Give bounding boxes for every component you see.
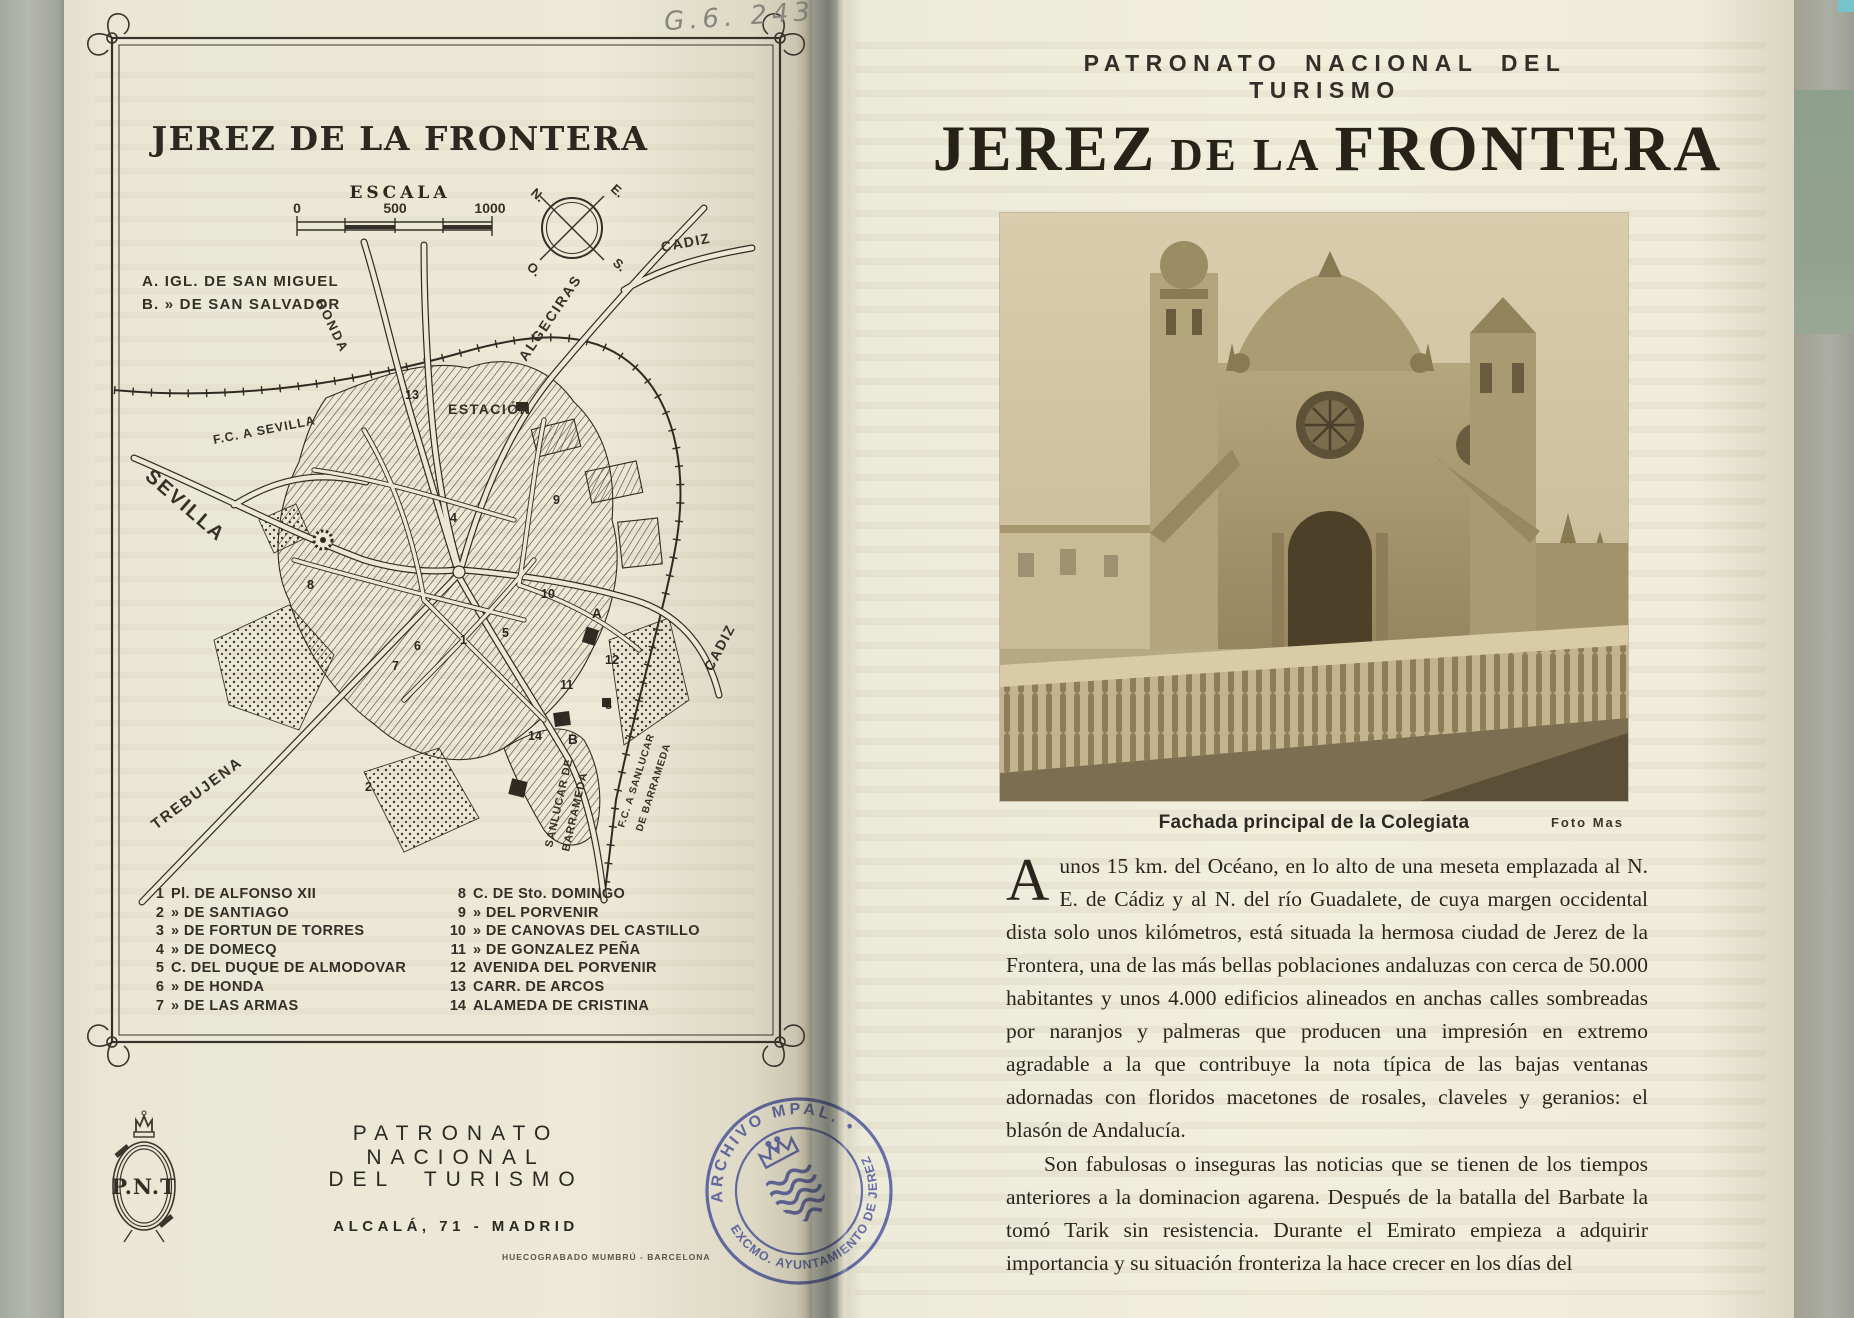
svg-text:9: 9: [553, 493, 560, 507]
green-page-corner: [1792, 90, 1854, 334]
map-key-a: A. IGL. DE SAN MIGUEL: [142, 273, 339, 290]
svg-text:500: 500: [383, 200, 407, 216]
publisher-name-line2: DEL TURISMO: [250, 1168, 662, 1192]
map-legend-right: 8C. DE Sto. DOMINGO 9» DEL PORVENIR 10» …: [442, 886, 700, 1016]
photo-credit: Foto Mas: [1551, 815, 1624, 830]
svg-text:1: 1: [460, 633, 467, 647]
colegiata-photo: [1000, 213, 1628, 801]
teal-corner-sliver: [1838, 0, 1854, 12]
legend-item: 8C. DE Sto. DOMINGO: [442, 886, 700, 905]
stamp-crown-icon: [756, 1132, 798, 1168]
svg-text:O.: O.: [524, 259, 544, 279]
scanned-brochure: JEREZ DE LA FRONTERA ESCALA 0 500 1000 N…: [0, 0, 1854, 1318]
legend-item: 4» DE DOMECQ: [140, 942, 406, 961]
legend-item: 6» DE HONDA: [140, 979, 406, 998]
svg-text:CADIZ: CADIZ: [660, 230, 712, 255]
svg-text:2: 2: [365, 780, 372, 794]
svg-text:4: 4: [450, 511, 457, 525]
svg-text:13: 13: [405, 388, 419, 402]
svg-text:A: A: [592, 606, 602, 621]
scale-bar: 0 500 1000: [293, 200, 506, 236]
page-title: JEREZ DE LA FRONTERA: [928, 112, 1728, 187]
svg-text:P.N.T: P.N.T: [111, 1174, 176, 1199]
svg-text:0: 0: [293, 200, 301, 216]
publisher-name-line1: PATRONATO NACIONAL: [250, 1122, 662, 1170]
svg-text:CADIZ: CADIZ: [701, 622, 739, 674]
svg-text:8: 8: [307, 578, 314, 592]
legend-item: 1Pl. DE ALFONSO XII: [140, 886, 406, 905]
legend-item: 14ALAMEDA DE CRISTINA: [442, 998, 700, 1017]
legend-item: 12AVENIDA DEL PORVENIR: [442, 960, 700, 979]
svg-text:N.: N.: [528, 185, 548, 205]
legend-item: 9» DEL PORVENIR: [442, 905, 700, 924]
svg-text:7: 7: [392, 659, 399, 673]
publisher-address: ALCALÁ, 71 - MADRID: [250, 1218, 662, 1235]
map-title: JEREZ DE LA FRONTERA: [149, 119, 649, 158]
legend-item: 7» DE LAS ARMAS: [140, 998, 406, 1017]
svg-text:TREBUJENA: TREBUJENA: [148, 754, 246, 834]
legend-item: 3» DE FORTUN DE TORRES: [140, 923, 406, 942]
pnt-logo: P.N.T: [98, 1104, 190, 1250]
svg-text:S.: S.: [610, 255, 629, 274]
compass-rose: N. E. O. S.: [524, 181, 629, 279]
body-text: Aunos 15 km. del Océano, en lo alto de u…: [1006, 850, 1648, 1280]
legend-item: 5C. DEL DUQUE DE ALMODOVAR: [140, 960, 406, 979]
archive-stamp: ARCHIVO MPAL. • EXCMO. AYUNTAMIENTO DE J…: [698, 1090, 900, 1292]
page-kicker: PATRONATO NACIONAL DEL TURISMO: [1005, 50, 1645, 104]
svg-text:ESTACIÓN: ESTACIÓN: [448, 400, 531, 417]
legend-item: 11» DE GONZALEZ PEÑA: [442, 942, 700, 961]
svg-text:6: 6: [414, 639, 421, 653]
svg-text:14: 14: [528, 729, 542, 743]
svg-text:10: 10: [541, 587, 555, 601]
svg-text:5: 5: [502, 626, 509, 640]
svg-text:B: B: [568, 732, 578, 747]
legend-item: 13CARR. DE ARCOS: [442, 979, 700, 998]
body-paragraph-1: Aunos 15 km. del Océano, en lo alto de u…: [1006, 850, 1648, 1147]
svg-text:12: 12: [605, 653, 619, 667]
map-legend-left: 1Pl. DE ALFONSO XII 2» DE SANTIAGO 3» DE…: [140, 886, 406, 1016]
legend-item: 10» DE CANOVAS DEL CASTILLO: [442, 923, 700, 942]
svg-text:11: 11: [560, 678, 573, 692]
map-key-b: B. » DE SAN SALVADOR: [142, 296, 340, 313]
svg-text:E.: E.: [608, 181, 627, 200]
legend-item: 2» DE SANTIAGO: [140, 905, 406, 924]
stamp-waves-icon: [762, 1162, 832, 1231]
drop-cap: A: [1006, 850, 1059, 905]
svg-text:3: 3: [605, 698, 612, 712]
photo-caption-row: Fachada principal de la Colegiata Foto M…: [1000, 812, 1628, 838]
svg-text:F.C. A SEVILLA: F.C. A SEVILLA: [212, 413, 317, 447]
photo-caption: Fachada principal de la Colegiata: [1000, 812, 1628, 834]
scan-edge-left: [0, 0, 64, 1318]
svg-text:1000: 1000: [474, 200, 505, 216]
body-paragraph-2: Son fabulosas o inseguras las noticias q…: [1006, 1148, 1648, 1280]
